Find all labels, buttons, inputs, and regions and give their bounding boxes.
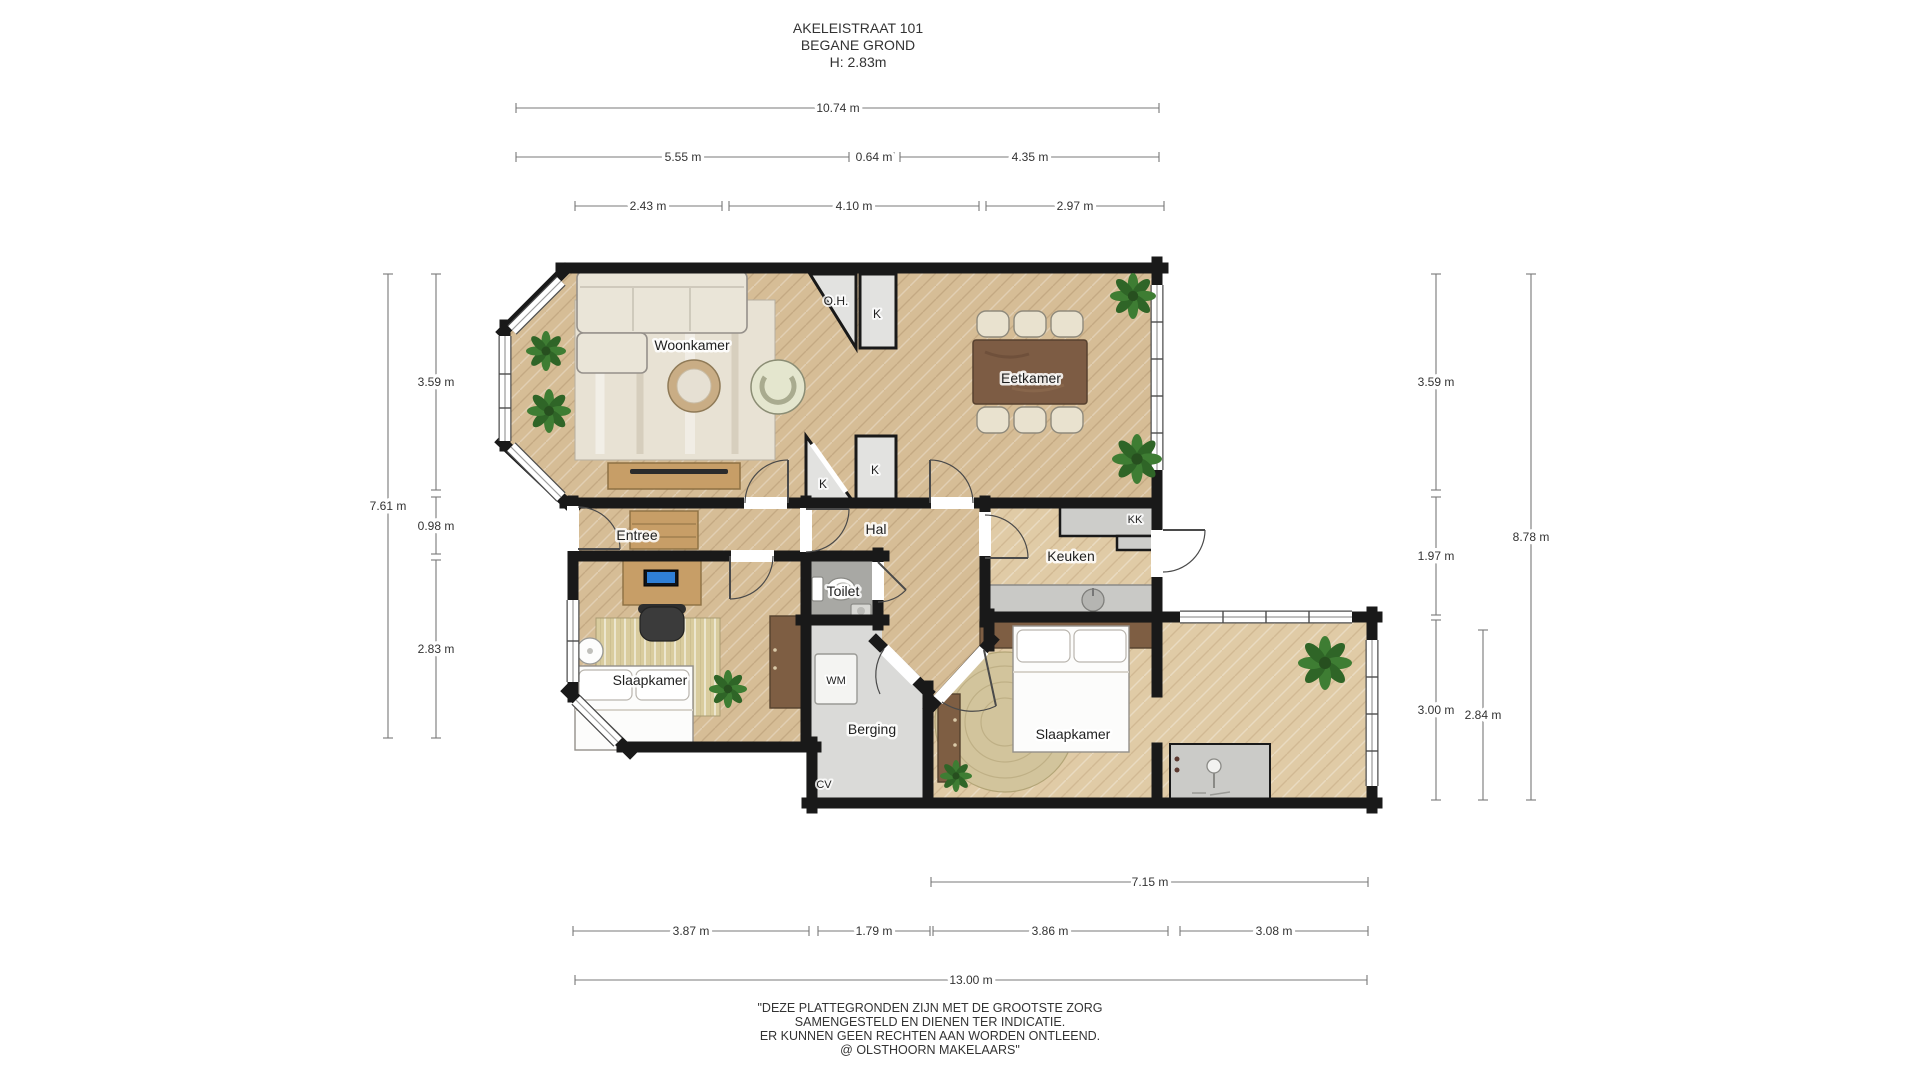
label-closet-mid-right: K (871, 463, 879, 477)
dim-top-row3-1: 4.10 m (836, 199, 873, 213)
dim-top-row2-0: 5.55 m (665, 150, 702, 164)
plant-eetkamer-bottom (1112, 434, 1162, 484)
dim-bottom-row2-1: 1.79 m (856, 924, 893, 938)
bedroom-left-window (567, 600, 579, 682)
dim-bottom-wing: 7.15 m (931, 875, 1368, 889)
wing-vanity-unit (1170, 744, 1270, 801)
dim-top-total: 10.74 m (516, 101, 1159, 115)
wing-window-right (1366, 640, 1378, 786)
dim-right-seg-1: 1.97 m (1418, 549, 1455, 563)
label-hal: Hal (865, 521, 886, 537)
plant-bedroom-left (709, 670, 747, 708)
dim-top-row3-0: 2.43 m (630, 199, 667, 213)
label-open-haard: O.H. (824, 294, 849, 308)
dim-top-row3-2: 2.97 m (1057, 199, 1094, 213)
label-wasmachine: WM (826, 675, 846, 687)
label-cv-ketel: CV (816, 779, 832, 791)
dim-left-segments: 3.59 m 0.98 m 2.83 m (418, 274, 455, 738)
label-closet-top: K (873, 307, 881, 321)
desk-chair (638, 604, 686, 641)
title-height: H: 2.83m (830, 54, 887, 70)
dim-right-seg-0: 3.59 m (1418, 375, 1455, 389)
label-slaapkamer-left: Slaapkamer (613, 672, 688, 688)
plant-bedroom-right (940, 760, 972, 792)
plant-eetkamer-top (1110, 273, 1156, 319)
dim-bottom-row2-3: 3.08 m (1256, 924, 1293, 938)
dim-right-total: 8.78 m (1513, 274, 1550, 800)
dim-bottom-total: 13.00 m (575, 973, 1367, 987)
disclaimer-line-3: ER KUNNEN GEEN RECHTEN AAN WORDEN ONTLEE… (760, 1029, 1100, 1043)
dim-bottom-row2-0: 3.87 m (673, 924, 710, 938)
dim-left-total-label: 7.61 m (370, 499, 407, 513)
floorplan-page: Woonkamer Eetkamer Entree Hal Keuken Toi… (0, 0, 1920, 1080)
title-block: AKELEISTRAAT 101 BEGANE GROND H: 2.83m (793, 20, 923, 70)
dim-left-total: 7.61 m (370, 274, 407, 738)
dim-bottom-wing-label: 7.15 m (1132, 875, 1169, 889)
label-entree: Entree (616, 527, 657, 543)
label-keuken: Keuken (1047, 548, 1094, 564)
plant-bay-2 (527, 389, 571, 433)
armchair (751, 360, 805, 414)
plant-bay-1 (526, 331, 566, 371)
kitchen-counter (985, 585, 1157, 615)
dim-right-wing-label: 2.84 m (1465, 708, 1502, 722)
label-closet-mid-left: K (819, 477, 827, 491)
disclaimer: "DEZE PLATTEGRONDEN ZIJN MET DE GROOTSTE… (758, 1001, 1103, 1057)
label-eetkamer: Eetkamer (1001, 370, 1061, 386)
dim-right-segments: 3.59 m 1.97 m 3.00 m (1418, 274, 1455, 800)
disclaimer-line-1: "DEZE PLATTEGRONDEN ZIJN MET DE GROOTSTE… (758, 1001, 1103, 1015)
dim-right-wing: 2.84 m (1465, 630, 1502, 800)
dim-top-row3: 2.43 m 4.10 m 2.97 m (575, 199, 1164, 213)
disclaimer-line-2: SAMENGESTELD EN DIENEN TER INDICATIE. (795, 1015, 1065, 1029)
bedside-table-round (577, 638, 603, 664)
label-berging: Berging (848, 721, 896, 737)
dim-top-row2-2: 4.35 m (1012, 150, 1049, 164)
label-koelkast: KK (1128, 514, 1143, 526)
dim-bottom-row2: 3.87 m 1.79 m 3.86 m 3.08 m (573, 924, 1368, 938)
plant-wing (1298, 636, 1352, 690)
tv-cabinet (608, 463, 740, 489)
dim-right-seg-2: 3.00 m (1418, 703, 1455, 717)
dim-left-seg-0: 3.59 m (418, 375, 455, 389)
dim-right-total-label: 8.78 m (1513, 530, 1550, 544)
dim-top-total-label: 10.74 m (816, 101, 859, 115)
bay-window-left (499, 336, 511, 441)
disclaimer-line-4: @ OLSTHOORN MAKELAARS" (840, 1043, 1020, 1057)
floorplan-canvas: Woonkamer Eetkamer Entree Hal Keuken Toi… (0, 0, 1920, 1080)
label-woonkamer: Woonkamer (654, 337, 730, 353)
dim-bottom-total-label: 13.00 m (949, 973, 992, 987)
coffee-table (668, 360, 720, 412)
dim-top-row2-1: 0.64 m (856, 150, 893, 164)
title-address: AKELEISTRAAT 101 (793, 20, 923, 36)
desk (623, 560, 701, 605)
label-slaapkamer-right: Slaapkamer (1036, 726, 1111, 742)
label-toilet: Toilet (827, 583, 860, 599)
dim-left-seg-2: 2.83 m (418, 642, 455, 656)
door-keuken-exterior (1157, 530, 1205, 577)
title-floor: BEGANE GROND (801, 37, 915, 53)
wing-window-top (1180, 611, 1352, 623)
dim-top-row2: 5.55 m 0.64 m 4.35 m (516, 150, 1159, 164)
dim-left-seg-1: 0.98 m (418, 519, 455, 533)
dim-bottom-row2-2: 3.86 m (1032, 924, 1069, 938)
